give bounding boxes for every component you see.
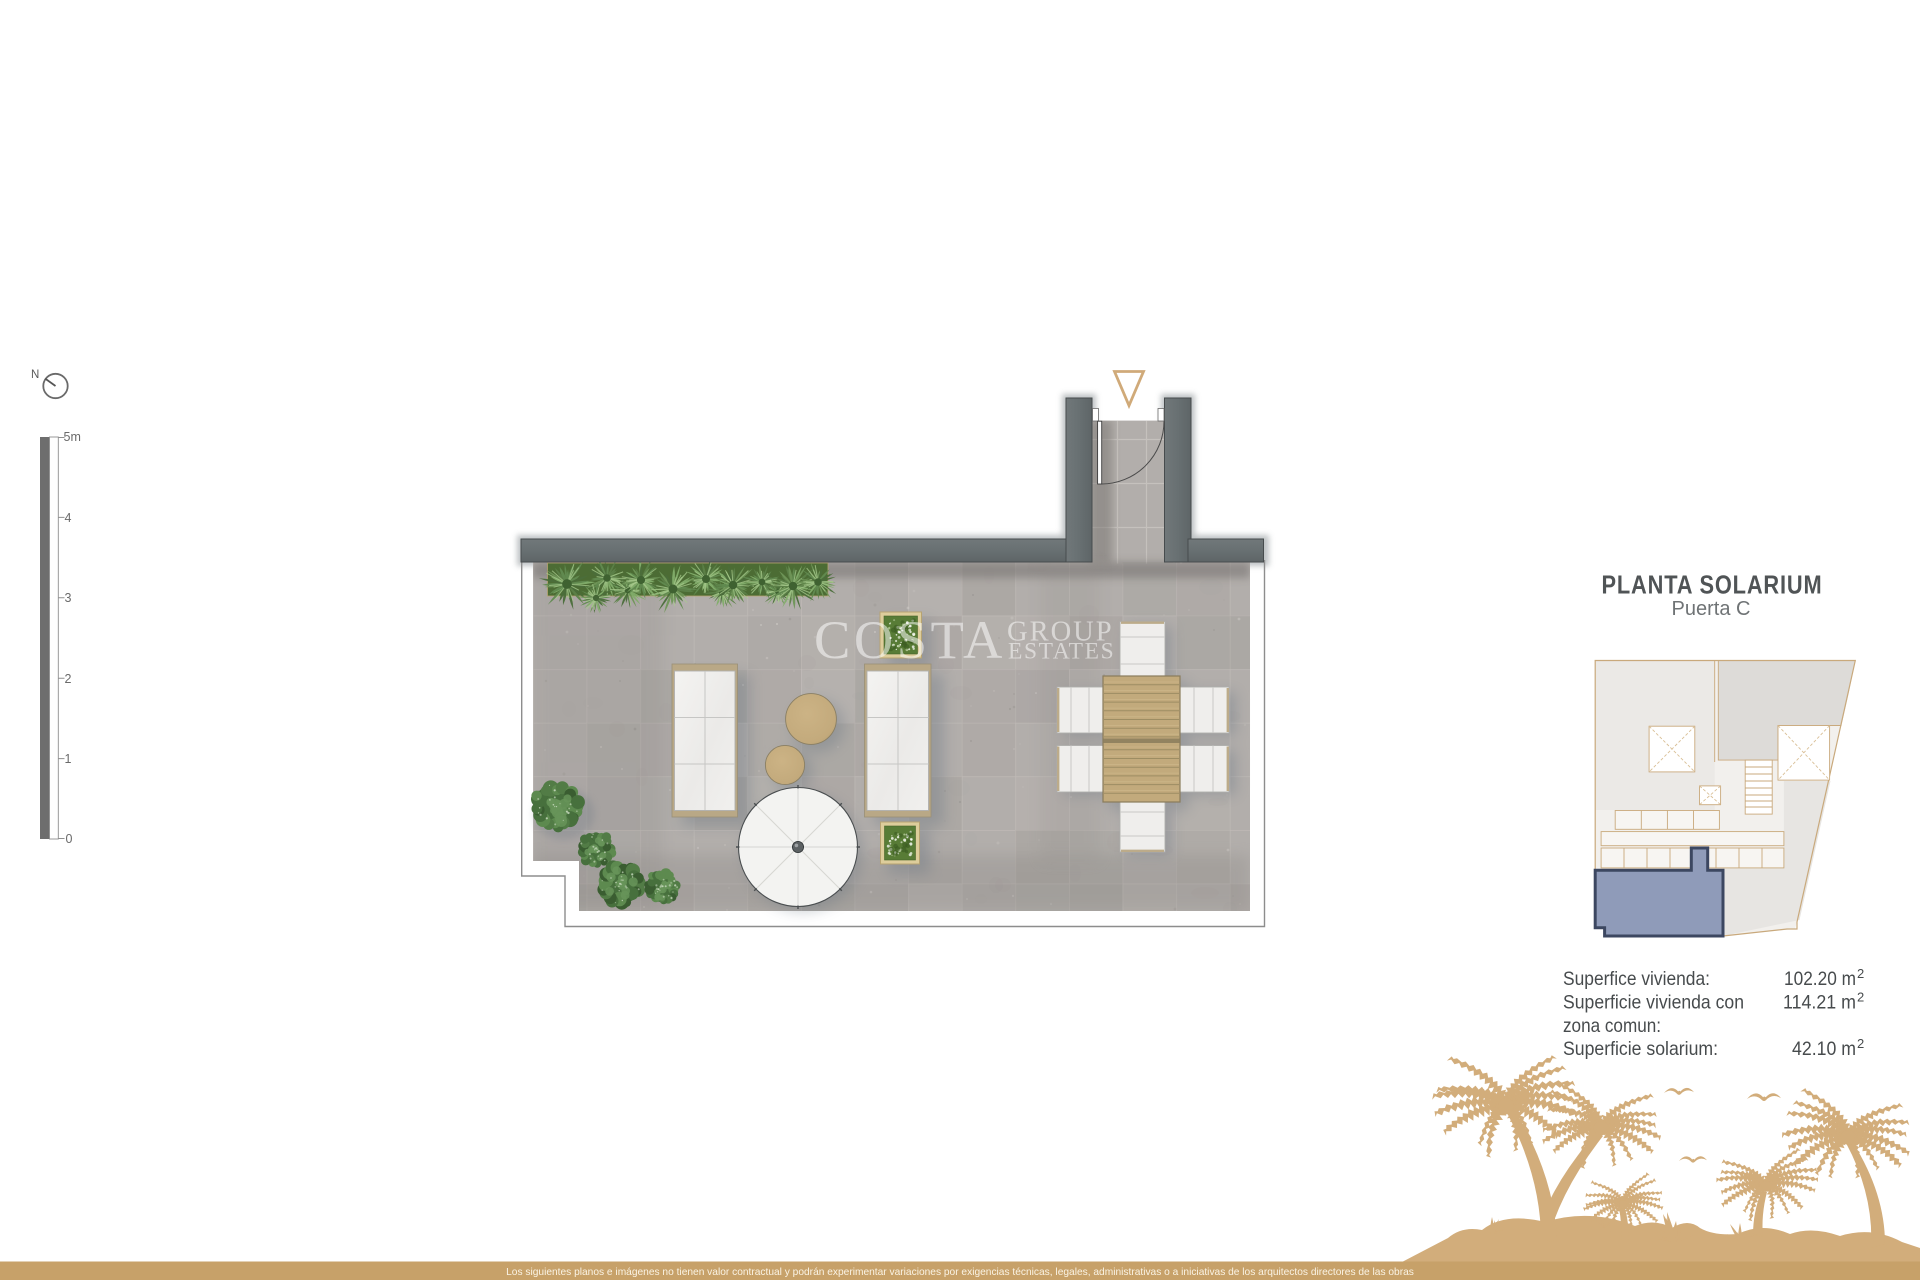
- svg-text:0: 0: [66, 832, 73, 846]
- svg-text:4: 4: [65, 511, 72, 525]
- svg-text:5m: 5m: [64, 430, 81, 444]
- svg-text:3: 3: [65, 591, 72, 605]
- svg-text:ESTATES: ESTATES: [1008, 639, 1115, 665]
- svg-text:102.20 m: 102.20 m: [1784, 968, 1856, 990]
- svg-text:42.10 m: 42.10 m: [1792, 1038, 1856, 1060]
- svg-text:2: 2: [65, 672, 72, 686]
- svg-text:N: N: [31, 369, 39, 381]
- svg-text:2: 2: [1857, 990, 1864, 1005]
- svg-text:2: 2: [1857, 966, 1864, 981]
- svg-text:Superficie vivienda con: Superficie vivienda con: [1563, 992, 1744, 1014]
- svg-text:Puerta C: Puerta C: [1672, 598, 1751, 620]
- svg-text:PLANTA SOLARIUM: PLANTA SOLARIUM: [1602, 570, 1823, 600]
- svg-text:zona comun:: zona comun:: [1563, 1015, 1661, 1037]
- svg-text:Superficie solarium:: Superficie solarium:: [1563, 1038, 1718, 1060]
- svg-text:1: 1: [65, 752, 72, 766]
- svg-text:114.21 m: 114.21 m: [1783, 992, 1856, 1014]
- svg-text:COSTA: COSTA: [814, 609, 1006, 670]
- svg-text:2: 2: [1857, 1036, 1864, 1051]
- svg-text:Los siguientes planos e imágen: Los siguientes planos e imágenes no tien…: [506, 1267, 1414, 1278]
- svg-text:Superfice vivienda:: Superfice vivienda:: [1563, 968, 1710, 990]
